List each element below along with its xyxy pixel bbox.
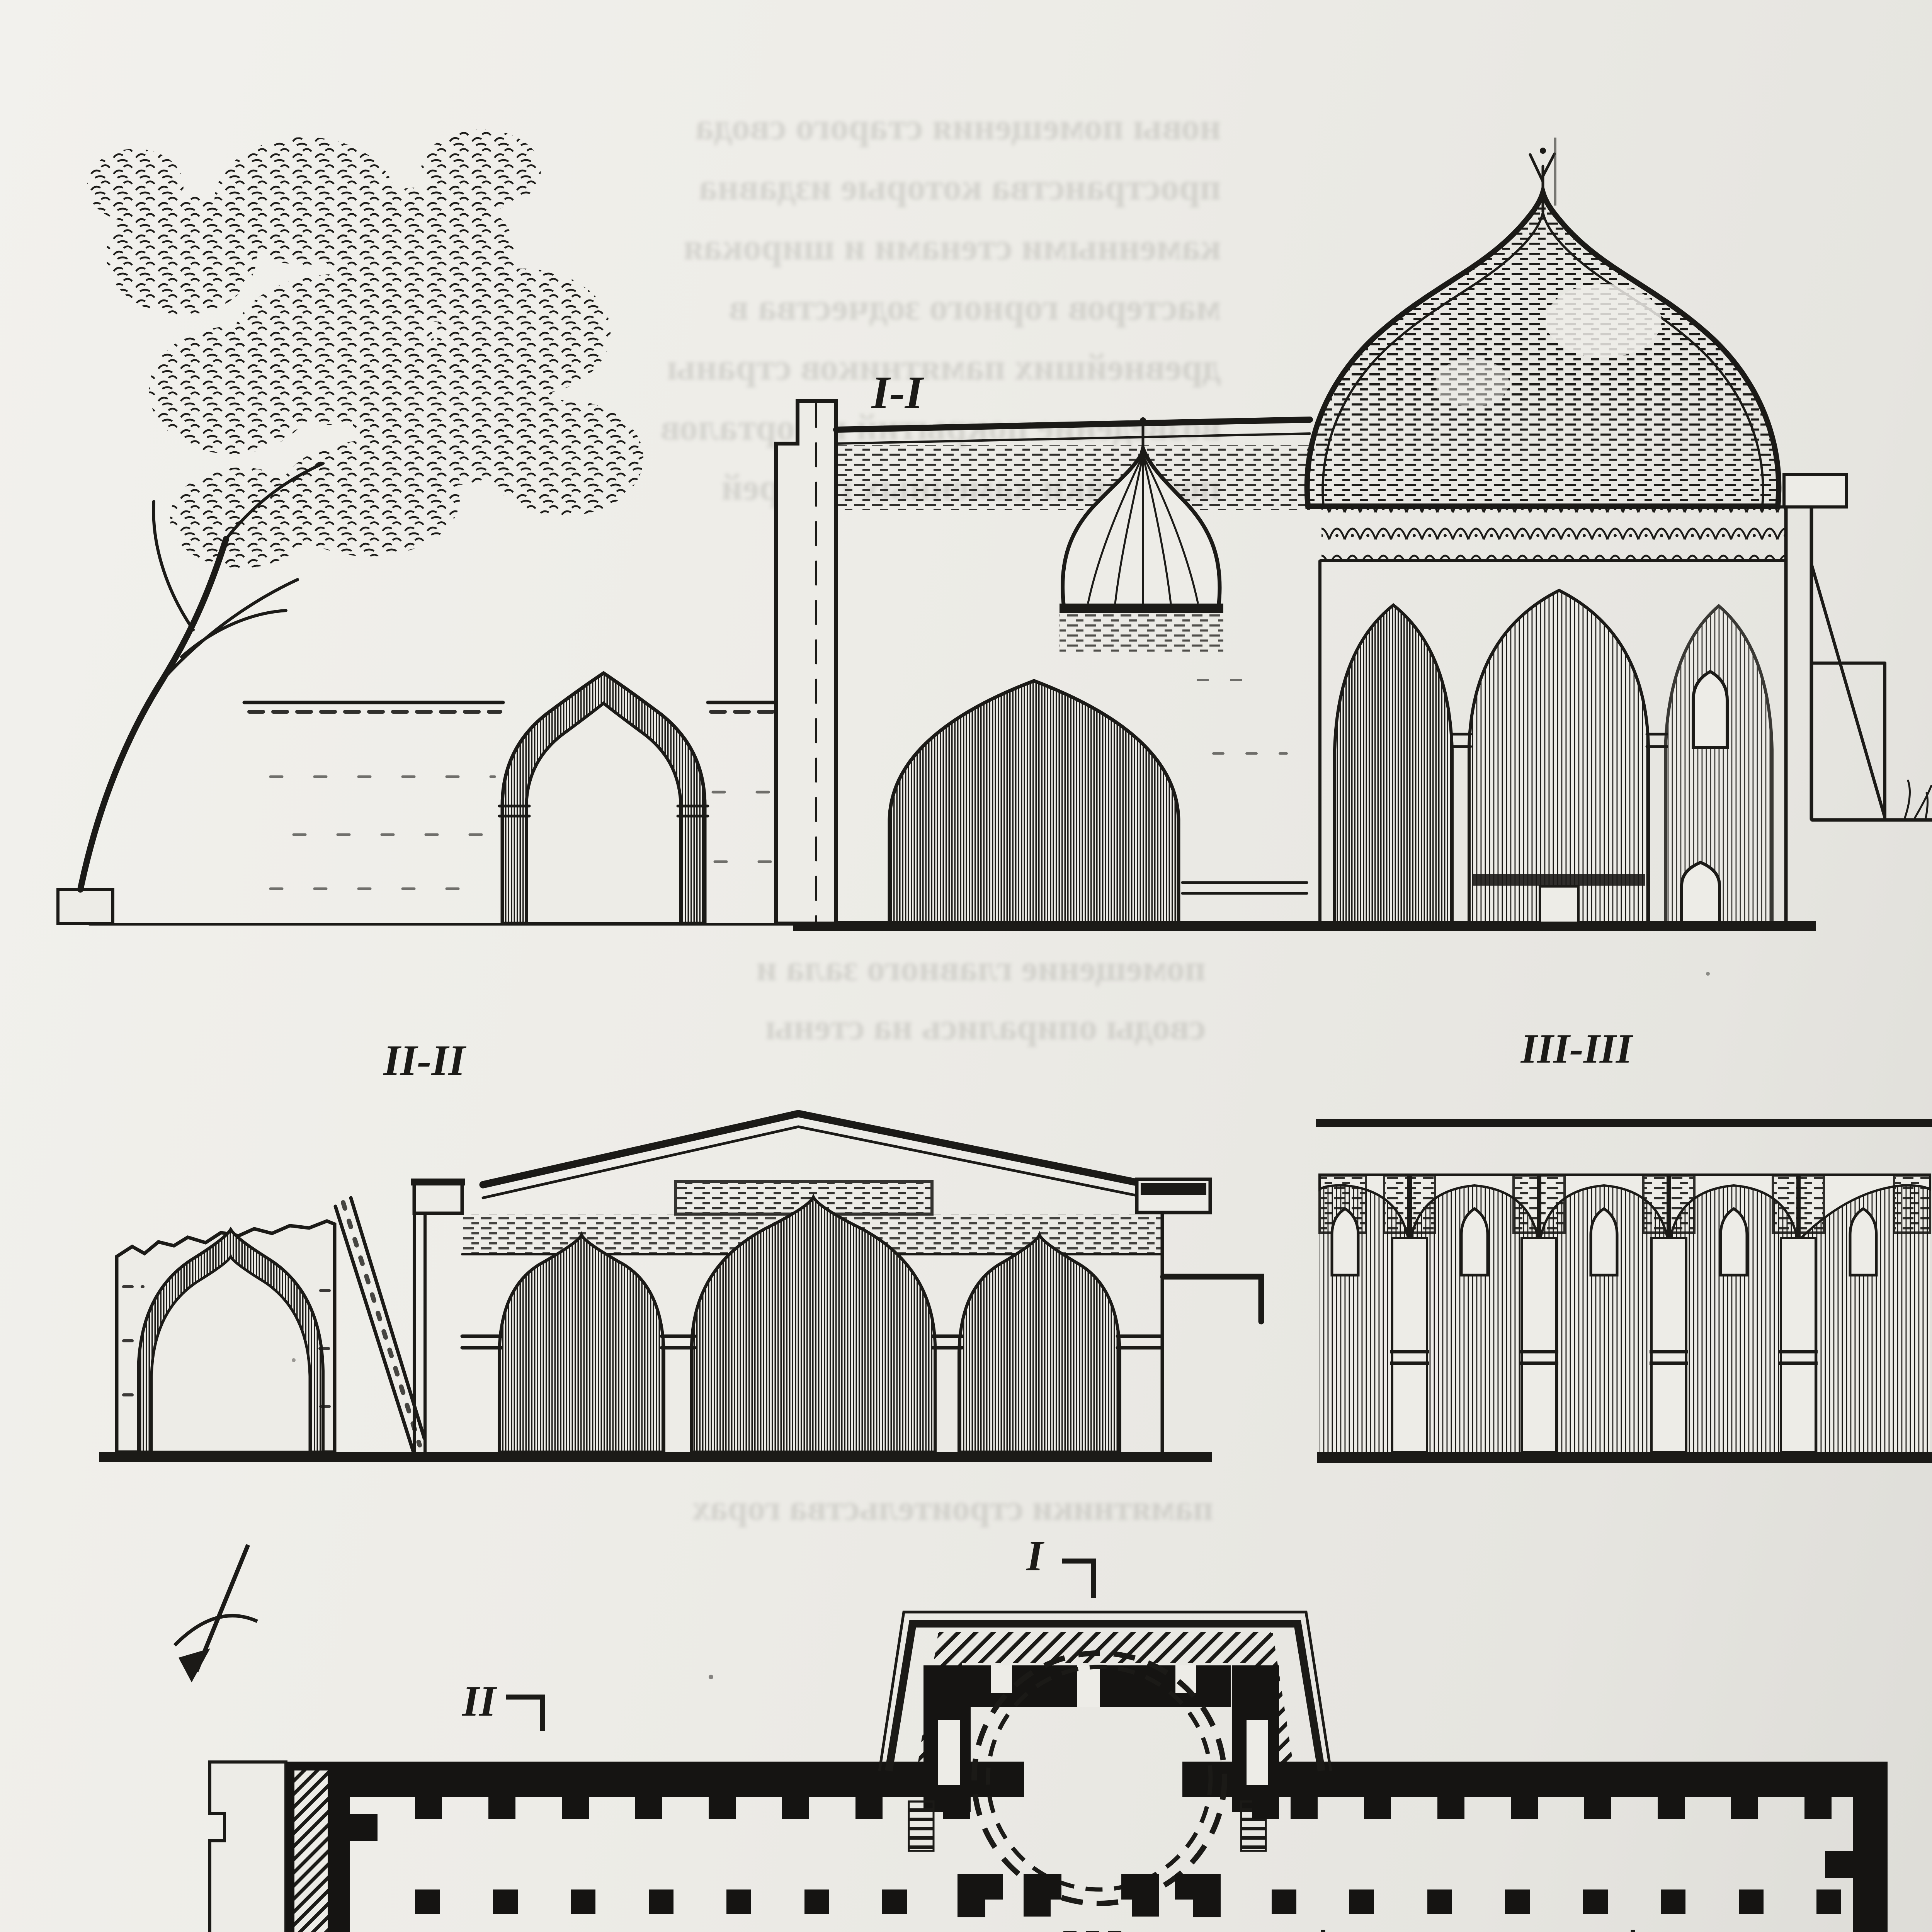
chamber-north-door xyxy=(1077,1665,1100,1707)
east-wall-buttress xyxy=(1784,474,1932,923)
dome-finial xyxy=(1530,154,1554,212)
main-dome xyxy=(1307,148,1779,506)
section-III-III-drawing xyxy=(1316,1119,1932,1463)
section-III-cut-marks xyxy=(618,1930,1633,1932)
base-line xyxy=(1317,1452,1932,1463)
north-arrow xyxy=(175,1545,257,1682)
east-wall xyxy=(1853,1762,1888,1932)
roof-line xyxy=(1316,1119,1932,1127)
dome-chamber xyxy=(879,1612,1331,1903)
label-section-II-II: II-II xyxy=(383,1037,466,1085)
stairs-west xyxy=(909,1801,934,1851)
figure-85-drawing: I-I II-II III-III I II I II 2 0 2 4 6 8 … xyxy=(0,0,1932,1932)
north-wall-west xyxy=(286,1762,908,1797)
doorway xyxy=(1682,862,1719,923)
muqarnas-band xyxy=(1321,508,1785,560)
label-section-I-I: I-I xyxy=(871,367,925,418)
masonry-band xyxy=(838,445,1310,510)
left-parapet xyxy=(414,1183,462,1213)
marker-bracket-I-top xyxy=(1062,1561,1094,1598)
dome-hall-arches xyxy=(1335,590,1772,923)
plan-marker-II-top: II xyxy=(461,1677,497,1725)
label-section-III-III: III-III xyxy=(1520,1026,1634,1072)
gable-roof xyxy=(483,1114,1137,1185)
plan-walls xyxy=(286,1762,1888,1932)
ruin-wall xyxy=(117,1221,338,1452)
pillar-row-north xyxy=(415,1874,1841,1917)
north-pilasters xyxy=(415,1797,1832,1819)
plan-marker-I-top: I xyxy=(1026,1532,1044,1580)
west-wall-hatch xyxy=(294,1770,328,1932)
sloped-strut xyxy=(335,1198,424,1452)
marker-bracket-II-top xyxy=(506,1697,543,1731)
floor-plan xyxy=(175,1545,1888,1932)
section-I-I-drawing xyxy=(58,129,1932,931)
antechamber-arch xyxy=(889,681,1179,923)
scratch-line xyxy=(1554,138,1556,206)
north-wall-east xyxy=(1302,1762,1888,1797)
roof-line xyxy=(836,420,1310,430)
roof-line-inner xyxy=(836,434,1310,444)
west-wall-pier xyxy=(776,401,836,923)
side-pilasters xyxy=(350,1814,1853,1932)
scanned-book-page: новы помещения старого сводапространства… xyxy=(0,0,1932,1932)
west-annex xyxy=(210,1762,286,1932)
section-II-II-drawing xyxy=(99,1114,1261,1462)
courtyard-wall xyxy=(244,673,776,923)
tree-foliage xyxy=(87,129,643,568)
plant xyxy=(1905,781,1931,818)
window xyxy=(1693,672,1727,748)
